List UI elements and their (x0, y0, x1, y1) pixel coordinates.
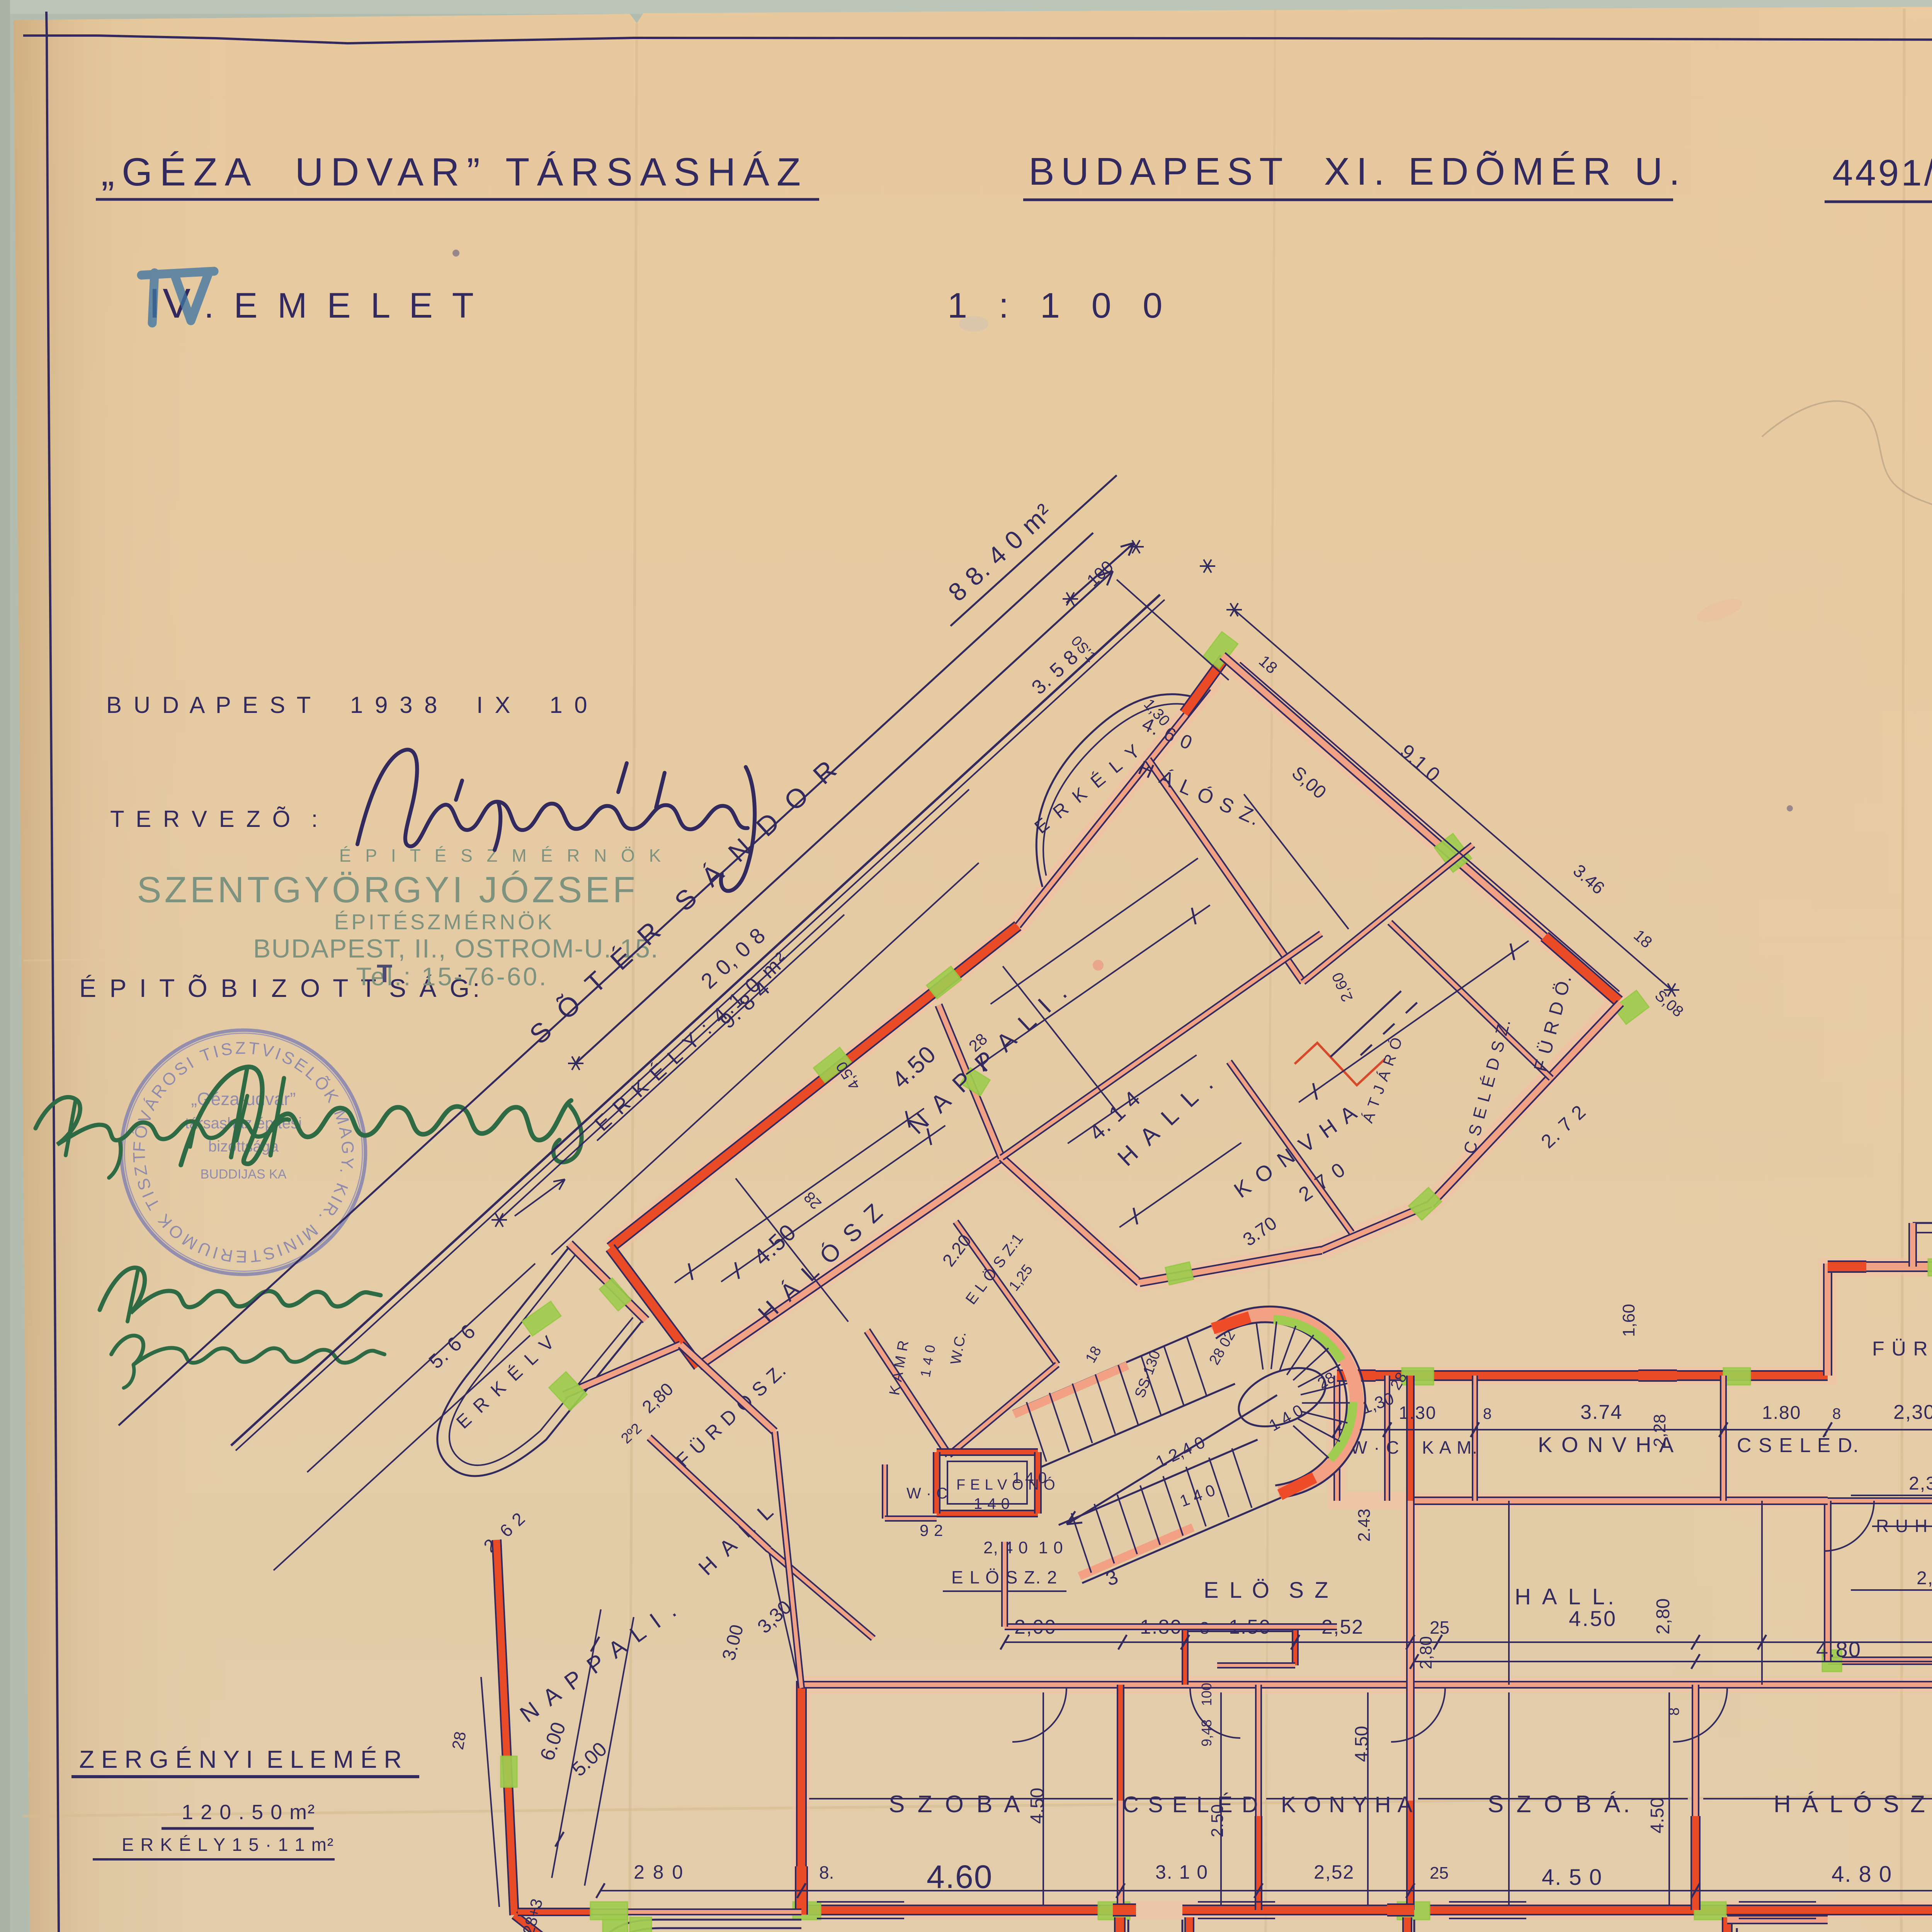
svg-text:bizottsága: bizottsága (208, 1138, 279, 1155)
svg-text:2,28: 2,28 (1650, 1414, 1669, 1447)
svg-text:SZENTGYÖRGYI JÓZSEF: SZENTGYÖRGYI JÓZSEF (137, 869, 638, 910)
svg-text:BUDAPEST, II., OSTROM-U. 15.: BUDAPEST, II., OSTROM-U. 15. (253, 934, 659, 963)
svg-text:2,80: 2,80 (1417, 1636, 1435, 1669)
svg-text:8: 8 (1483, 1405, 1492, 1422)
svg-text:1 4 0: 1 4 0 (974, 1495, 1010, 1512)
svg-text:K A M.: K A M. (1422, 1437, 1478, 1458)
svg-text:100: 100 (1199, 1683, 1214, 1706)
svg-text:2, 4 0 1 0: 2, 4 0 1 0 (983, 1538, 1063, 1557)
svg-text:1.30: 1.30 (1399, 1403, 1437, 1423)
svg-text:1,60: 1,60 (1619, 1304, 1638, 1337)
svg-text:2.50: 2.50 (1208, 1804, 1227, 1837)
svg-text:8.: 8. (819, 1862, 834, 1883)
svg-text:C S E L É D: C S E L É D (1122, 1792, 1260, 1817)
svg-text:25: 25 (1430, 1617, 1449, 1638)
svg-text:4.50: 4.50 (1352, 1726, 1372, 1762)
svg-text:. E M E L E T: . E M E L E T (204, 286, 479, 325)
svg-text:2,52: 2,52 (1314, 1861, 1354, 1883)
svg-text:T: T (377, 959, 392, 988)
svg-text:B U D A P E S T 1 9 3 8: B U D A P E S T 1 9 3 8 I X 1 0 (106, 692, 590, 718)
svg-text:1 2 0 . 5 0 m²: 1 2 0 . 5 0 m² (182, 1801, 315, 1824)
svg-text:BUDAPEST XI. EDÕMÉR U.: BUDAPEST XI. EDÕMÉR U. (1029, 150, 1686, 193)
svg-text:K O N Y H A: K O N Y H A (1281, 1792, 1413, 1817)
svg-text:T E R V E Z Õ :: T E R V E Z Õ : (110, 806, 320, 832)
svg-text:4491/9 HRSZ.: 4491/9 HRSZ. (1832, 152, 1932, 194)
svg-text:4. 5 0: 4. 5 0 (1542, 1865, 1602, 1890)
svg-text:25: 25 (1430, 1864, 1449, 1883)
svg-text:1.80: 1.80 (1762, 1403, 1801, 1423)
svg-text:3. 1 0: 3. 1 0 (1155, 1861, 1208, 1883)
svg-text:4.60: 4.60 (927, 1859, 993, 1895)
svg-text:E R K É L Y 1 5 · 1 1 m²: E R K É L Y 1 5 · 1 1 m² (122, 1834, 334, 1855)
svg-text:„GÉZA UDVAR” TÁRSASHÁZ: „GÉZA UDVAR” TÁRSASHÁZ (101, 150, 808, 194)
svg-text:9,48: 9,48 (1199, 1719, 1214, 1747)
svg-text:2.43: 2.43 (1355, 1509, 1374, 1542)
svg-text:É P I T É S Z M É R N Ö K: É P I T É S Z M É R N Ö K (339, 845, 665, 866)
svg-text:3.74: 3.74 (1580, 1401, 1622, 1423)
svg-text:4.80: 4.80 (1816, 1637, 1861, 1662)
svg-text:8: 8 (1666, 1708, 1682, 1716)
svg-text:4. 8 0: 4. 8 0 (1832, 1862, 1892, 1887)
svg-text:ÉPITÉSZMÉRNÖK: ÉPITÉSZMÉRNÖK (334, 910, 554, 934)
svg-text:2,30: 2,30 (1893, 1401, 1932, 1423)
svg-text:8: 8 (1832, 1405, 1841, 1422)
svg-text:BUDDIJAS KA: BUDDIJAS KA (201, 1167, 287, 1182)
svg-text:C S E L É D.: C S E L É D. (1737, 1434, 1859, 1457)
svg-text:4.50: 4.50 (1027, 1788, 1048, 1824)
svg-text:F Ü R D Ö S Z.: F Ü R D Ö S Z. (1872, 1338, 1932, 1360)
svg-text:1 4 0: 1 4 0 (1012, 1469, 1047, 1486)
svg-text:2,30: 2,30 (1917, 1568, 1932, 1588)
svg-text:28: 28 (449, 1730, 469, 1751)
svg-text:W · C: W · C (906, 1485, 948, 1502)
svg-text:E L Ö S Z: E L Ö S Z (1204, 1578, 1331, 1603)
svg-text:H Á L Ó S Z: H Á L Ó S Z (1774, 1791, 1927, 1818)
svg-text:Z E R G É N Y I E L E M É R: Z E R G É N Y I E L E M É R (79, 1745, 402, 1773)
svg-text:2,30: 2,30 (1909, 1473, 1932, 1494)
svg-text:4.50: 4.50 (1647, 1798, 1668, 1833)
svg-text:H A L L.: H A L L. (1515, 1584, 1617, 1609)
svg-text:2,80: 2,80 (1653, 1599, 1673, 1634)
svg-text:2 8 0: 2 8 0 (634, 1861, 684, 1883)
svg-text:S Z O B A: S Z O B A (889, 1791, 1023, 1818)
svg-text:9 2: 9 2 (920, 1521, 943, 1539)
svg-text:4.50: 4.50 (1569, 1606, 1617, 1631)
